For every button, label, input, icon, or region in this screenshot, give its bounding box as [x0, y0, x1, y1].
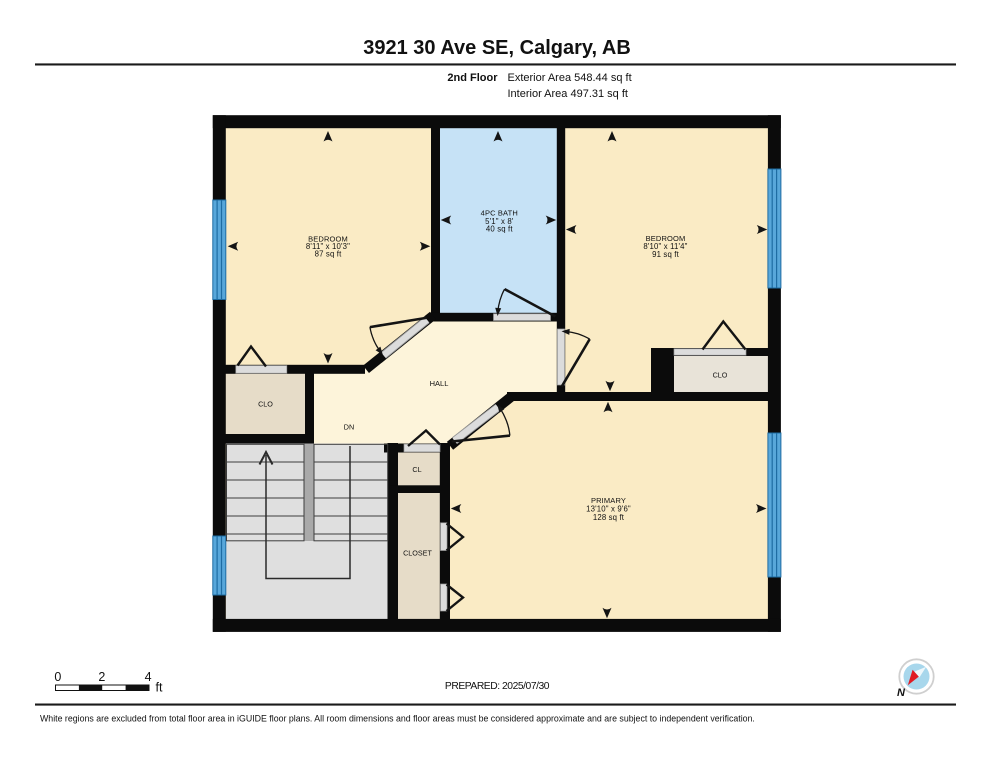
svg-text:128 sq ft: 128 sq ft — [593, 513, 625, 522]
svg-text:N: N — [897, 687, 906, 699]
svg-text:DN: DN — [344, 423, 354, 432]
svg-text:3921 30 Ave SE, Calgary, AB: 3921 30 Ave SE, Calgary, AB — [363, 37, 631, 59]
svg-text:HALL: HALL — [430, 379, 449, 388]
svg-text:Exterior Area 548.44 sq ft: Exterior Area 548.44 sq ft — [508, 72, 632, 84]
svg-text:2nd Floor: 2nd Floor — [447, 72, 498, 84]
svg-text:4: 4 — [145, 670, 152, 684]
svg-text:91 sq ft: 91 sq ft — [652, 250, 679, 259]
svg-text:CLOSET: CLOSET — [403, 549, 432, 558]
svg-text:40 sq ft: 40 sq ft — [486, 225, 513, 234]
svg-text:CLO: CLO — [713, 371, 728, 380]
svg-text:White regions are excluded fro: White regions are excluded from total fl… — [40, 714, 755, 724]
svg-text:PREPARED: 2025/07/30: PREPARED: 2025/07/30 — [445, 681, 550, 692]
svg-text:87 sq ft: 87 sq ft — [315, 250, 342, 259]
svg-text:Interior Area 497.31 sq ft: Interior Area 497.31 sq ft — [508, 88, 628, 100]
svg-text:CLO: CLO — [258, 400, 273, 409]
svg-text:ft: ft — [156, 681, 163, 695]
svg-text:CL: CL — [412, 465, 421, 474]
svg-text:0: 0 — [54, 670, 61, 684]
svg-text:2: 2 — [98, 670, 105, 684]
